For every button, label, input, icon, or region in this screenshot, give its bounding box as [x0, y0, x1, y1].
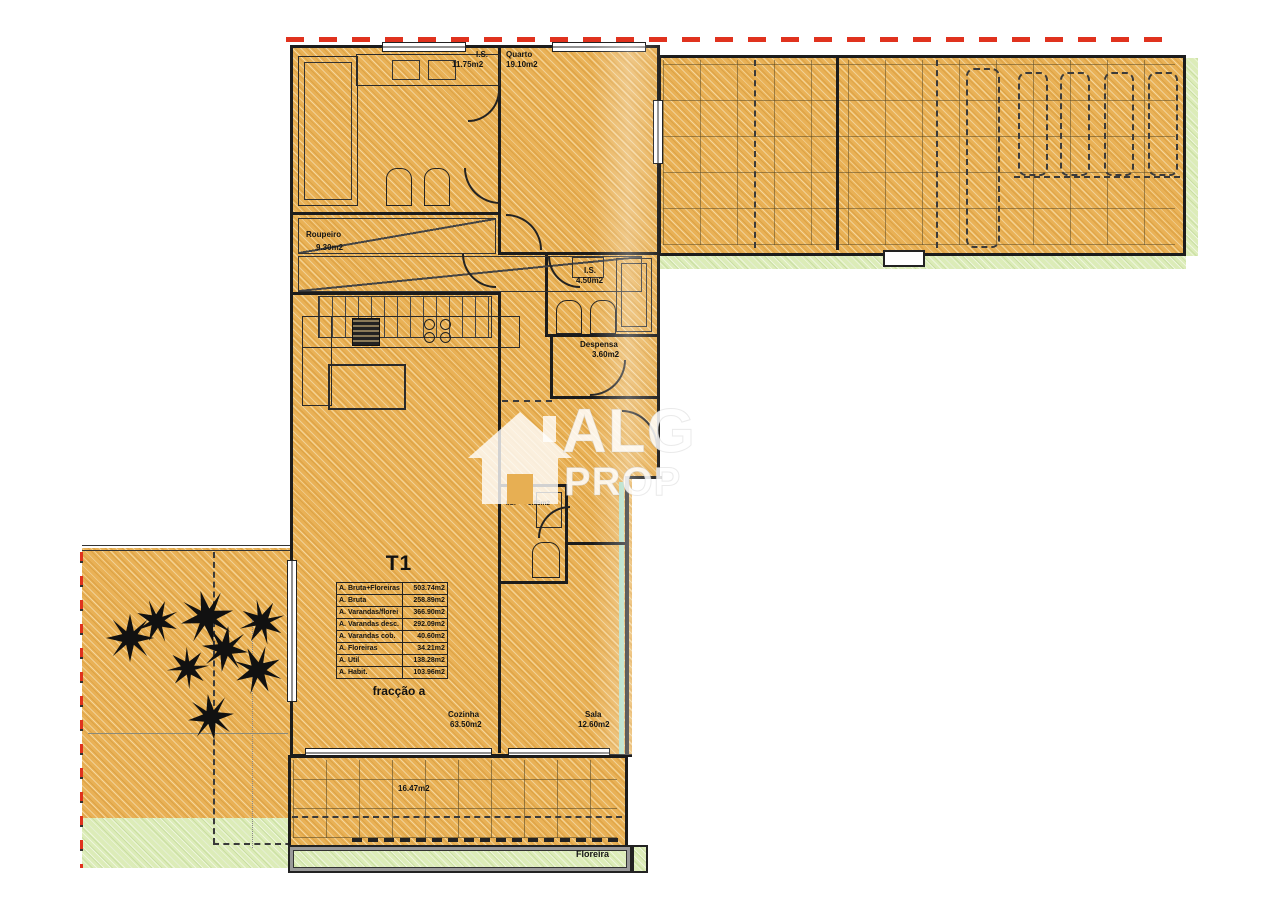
area-row-value: 103.96m2 [402, 667, 447, 679]
terrace-match-line [936, 60, 938, 248]
floor-plan-canvas: I.S. 11.75m2 Quarto 19.10m2 Roupeiro 9.3… [0, 0, 1280, 905]
toilet [556, 300, 582, 334]
area-row-value: 258.89m2 [402, 595, 447, 607]
table-row: A. Bruta258.89m2 [337, 595, 448, 607]
terrace-step [883, 250, 925, 267]
room-label-roupeiro: Roupeiro [306, 230, 341, 239]
room-area-is-mid: 4.50m2 [576, 276, 603, 285]
area-table: A. Bruta+Floreiras503.74m2 A. Bruta258.8… [336, 582, 448, 679]
area-row-label: A. Bruta [337, 595, 403, 607]
wall-segment [293, 212, 498, 215]
pergola-dashed-outline [1104, 72, 1134, 176]
kitchen-island [328, 364, 406, 410]
window [382, 42, 466, 52]
garden-top-edge [82, 545, 290, 551]
area-row-value: 40.60m2 [402, 631, 447, 643]
toilet [532, 542, 560, 578]
pergola-dashed-outline [1060, 72, 1090, 176]
fraction-label: fracção a [336, 684, 462, 698]
watermark-house-roof-icon [468, 412, 572, 458]
room-area-quarto: 19.10m2 [506, 60, 538, 69]
pergola-dashed-outline [1018, 72, 1048, 176]
area-row-label: A. Varandas desc. [337, 619, 403, 631]
terrace-dashed-line [292, 816, 622, 818]
area-row-label: A. Varandas/florei [337, 607, 403, 619]
stove-burner [440, 319, 451, 330]
table-row: A. Util138.28m2 [337, 655, 448, 667]
table-row: A. Varandas/florei366.90m2 [337, 607, 448, 619]
wall-segment [550, 334, 553, 399]
room-area-is-top: 11.75m2 [452, 60, 483, 69]
palm-tree-icon [183, 689, 239, 745]
table-row: A. Varandas desc.292.09m2 [337, 619, 448, 631]
window [287, 560, 297, 702]
wall-segment [498, 295, 501, 753]
area-row-value: 138.28m2 [402, 655, 447, 667]
stove-burner [440, 332, 451, 343]
room-area-roupeiro: 9.30m2 [316, 243, 343, 252]
pergola-dashed-outline [966, 68, 1000, 248]
stove-burner [424, 332, 435, 343]
corridor-dashed-line [502, 400, 552, 402]
area-row-value: 366.90m2 [402, 607, 447, 619]
area-row-label: A. Floreiras [337, 643, 403, 655]
area-row-label: A. Varandas cob. [337, 631, 403, 643]
wall-segment [498, 581, 568, 584]
bidet [424, 168, 450, 206]
room-label-cozinha: Cozinha [448, 710, 479, 719]
roof-terrace-tile-grid [663, 60, 1175, 245]
area-row-value: 503.74m2 [402, 583, 447, 595]
wall-segment [293, 292, 501, 295]
area-row-label: A. Bruta+Floreiras [337, 583, 403, 595]
room-label-is-mid: I.S. [584, 266, 596, 275]
planter-label: Floreira [576, 849, 609, 859]
room-label-is-top: I.S. [476, 50, 488, 59]
bathtub-inner [304, 62, 352, 200]
area-row-value: 34.21m2 [402, 643, 447, 655]
room-area-cozinha: 63.50m2 [450, 720, 482, 729]
room-label-quarto: Quarto [506, 50, 532, 59]
area-row-label: A. Util [337, 655, 403, 667]
area-row-value: 292.09m2 [402, 619, 447, 631]
watermark-text-line2: PROP [564, 464, 681, 500]
pergola-dashed-boundary [1014, 176, 1180, 178]
oven-appliance [352, 318, 380, 346]
room-label-sala: Sala [585, 710, 601, 719]
stove-burner [424, 319, 435, 330]
watermark-house-door-icon [507, 474, 533, 504]
terrace-match-line [754, 60, 756, 248]
table-row: A. Varandas cob.40.60m2 [337, 631, 448, 643]
table-row: A. Floreiras34.21m2 [337, 643, 448, 655]
table-row: A. Bruta+Floreiras503.74m2 [337, 583, 448, 595]
terrace-area-label: 16.47m2 [398, 784, 430, 793]
room-area-despensa: 3.60m2 [592, 350, 619, 359]
planter-box-end [632, 845, 648, 873]
area-row-label: A. Habit. [337, 667, 403, 679]
table-row: A. Habit.103.96m2 [337, 667, 448, 679]
unit-type-title: T1 [336, 552, 462, 576]
terrace-edge-dashes [352, 838, 620, 842]
watermark-text-line1: ALG [562, 404, 696, 460]
room-area-sala: 12.60m2 [578, 720, 610, 729]
room-label-despensa: Despensa [580, 340, 618, 349]
terrace-dividing-wall [836, 58, 839, 250]
toilet [386, 168, 412, 206]
boundary-line-left [80, 552, 83, 868]
pergola-dashed-outline [1148, 72, 1178, 176]
kitchen-counter [302, 316, 520, 348]
lower-terrace-tile-grid [293, 760, 617, 838]
planting-strip-right [1186, 58, 1198, 256]
sink [392, 60, 420, 80]
